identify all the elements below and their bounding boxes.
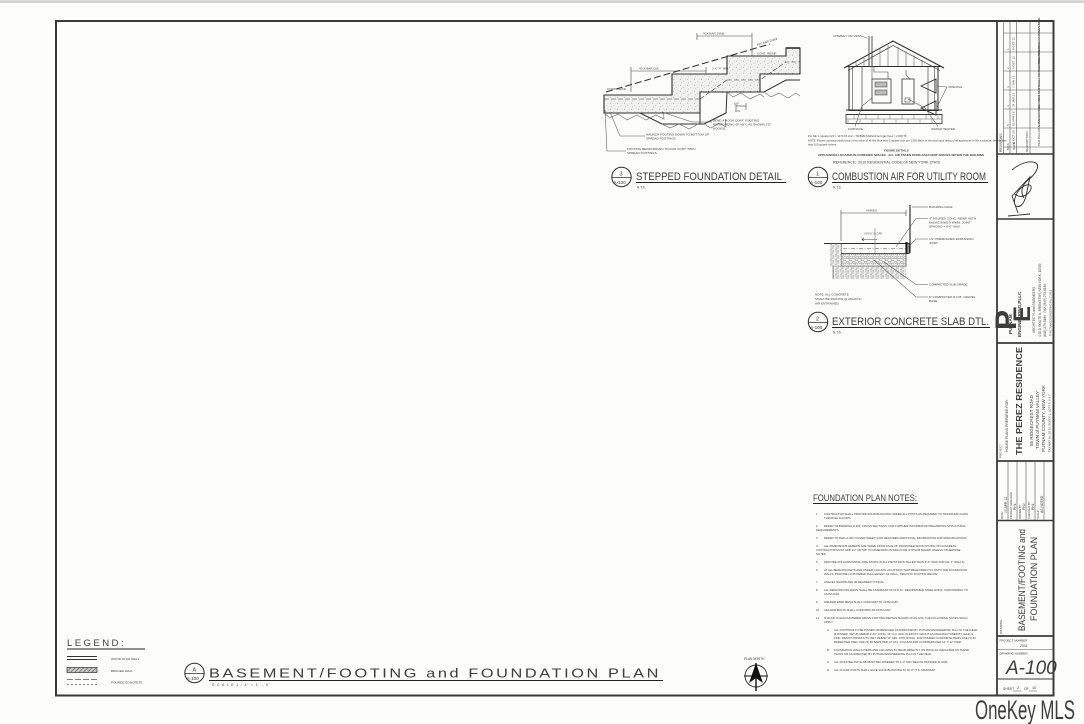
svg-text:Per NE: 1 square inch = 1470.1: Per NE: 1 square inch = 1470.15 mm². / 5…	[808, 134, 907, 138]
svg-text:NOTED.: NOTED.	[816, 552, 827, 556]
svg-text:ANGLES SHOWN ARE 45 DEGREES TY: ANGLES SHOWN ARE 45 DEGREES TYPICAL	[824, 580, 884, 584]
svg-text:ENGINEERING,PLLC: ENGINEERING,PLLC	[1017, 291, 1022, 337]
svg-text:SPACING = 8'-0" MAX.: SPACING = 8'-0" MAX.	[929, 225, 961, 229]
svg-text:PLAN NORTH: PLAN NORTH	[744, 657, 765, 661]
svg-text:© PUTNAM ENGINEERING PLLC 2012: © PUTNAM ENGINEERING PLLC 2012	[1049, 289, 1053, 336]
svg-text:PUTNAM: PUTNAM	[1008, 314, 1013, 334]
svg-text:DRAWING NUMBER: DRAWING NUMBER	[1000, 652, 1029, 656]
svg-text:WOOD STUD WALL: WOOD STUD WALL	[111, 657, 140, 661]
svg-text:COMPACTED SUB GRADE: COMPACTED SUB GRADE	[929, 283, 968, 287]
svg-text:55 RIDGECREST ROAD: 55 RIDGECREST ROAD	[1029, 394, 1034, 446]
svg-text:03 APR 12: 03 APR 12	[1004, 497, 1008, 513]
svg-text:TAX MAP No. 83.16, BLOCK 1, LO: TAX MAP No. 83.16, BLOCK 1, LOTS 5, 6 & …	[1048, 394, 1052, 452]
svg-text:10: 10	[1032, 686, 1036, 690]
svg-text:1.: 1.	[816, 512, 819, 516]
svg-text:A: A	[193, 668, 197, 674]
svg-text:OneKey MLS: OneKey MLS	[975, 695, 1075, 724]
svg-text:THROUGH FLOORS.: THROUGH FLOORS.	[824, 516, 851, 520]
svg-text:APPLY:: APPLY:	[824, 620, 834, 624]
svg-text:UP1%" SLOPE: UP1%" SLOPE	[864, 232, 882, 236]
svg-text:WELDED WIRE MESH SHALL CONFORM: WELDED WIRE MESH SHALL CONFORM TO ASTM A…	[824, 600, 899, 604]
svg-text:6.: 6.	[816, 568, 819, 572]
svg-text:BRACED WALL: BRACED WALL	[111, 669, 133, 673]
svg-text:CHIMNEY OR VENT: CHIMNEY OR VENT	[833, 34, 862, 38]
svg-text:NOTE: Rooms opening (shall) ha: NOTE: Rooms opening (shall) have a first…	[808, 139, 1007, 143]
svg-text:REBAR PER PIER, USE (5) #6 BAR: REBAR PER PIER, USE (5) #6 BARS PER 12" …	[834, 640, 962, 644]
svg-text:LEGEND:: LEGEND:	[67, 638, 126, 649]
svg-text:2: 2	[1017, 686, 1019, 690]
svg-text:BASEMENT/FOOTING and FOUNDAT: BASEMENT/FOOTING and FOUNDATION PLAN	[209, 667, 661, 681]
svg-text:1'-0": 1'-0"	[734, 102, 739, 106]
svg-text:BUILDING FACE: BUILDING FACE	[929, 205, 953, 209]
svg-text:EXTERIOR CONCRETE SLAB DTL.: EXTERIOR CONCRETE SLAB DTL.	[832, 316, 989, 328]
svg-text:N.T.S.: N.T.S.	[637, 186, 646, 190]
svg-text:2: 2	[816, 317, 819, 323]
svg-text:PER BUILDING INSPECTOR COMMENT: PER BUILDING INSPECTOR COMMENTS	[1037, 88, 1041, 146]
svg-text:8.: 8.	[816, 588, 819, 592]
svg-text:FOUNDATION PLAN: FOUNDATION PLAN	[1029, 537, 1039, 621]
svg-text:THE PEREZ RESIDENCE: THE PEREZ RESIDENCE	[1014, 347, 1024, 455]
svg-text:ASTM A615.: ASTM A615.	[824, 592, 840, 596]
svg-text:APPLIANCES LOCATED IN CONFINED: APPLIANCES LOCATED IN CONFINED SPACES - …	[818, 153, 985, 157]
svg-text:HOUSE PLANS PREPARED FOR:: HOUSE PLANS PREPARED FOR:	[1005, 399, 1009, 452]
svg-text:3.: 3.	[816, 536, 819, 540]
svg-text:PROVIDE 2X6 HORIZONTAL FIRE S: PROVIDE 2X6 HORIZONTAL FIRE STOPS IN ALL…	[824, 560, 964, 564]
svg-text:5.: 5.	[816, 560, 819, 564]
svg-text:A.: A.	[827, 628, 830, 632]
svg-text:AIR ENTRAINED: AIR ENTRAINED	[815, 302, 840, 306]
svg-text:JOINT: JOINT	[929, 241, 938, 245]
svg-text:ALL ROCK BELOW SLAB MUST BE LO: ALL ROCK BELOW SLAB MUST BE LOWERED TO 1…	[834, 660, 948, 664]
svg-text:BASE: BASE	[929, 299, 937, 303]
svg-text:OF: OF	[1024, 687, 1029, 691]
svg-text:SPREAD FOOTINGS: SPREAD FOOTINGS	[627, 151, 657, 155]
svg-text:A-100: A-100	[810, 325, 823, 330]
svg-text:ARCHITECTS and ENGINEERS: ARCHITECTS and ENGINEERS	[1032, 287, 1036, 333]
svg-text:COMBUSTION AIR FOR UTILITY ROO: COMBUSTION AIR FOR UTILITY ROOM	[832, 171, 986, 183]
svg-text:7.: 7.	[816, 580, 819, 584]
svg-text:PHL: PHL	[1013, 503, 1017, 510]
svg-text:WATER HEATER: WATER HEATER	[931, 127, 956, 131]
svg-text:01 APR 14: 01 APR 14	[1012, 111, 1016, 126]
svg-text:IF ROCK IS ENCOUNTERED ABOVE F: IF ROCK IS ENCOUNTERED ABOVE FOOTING DEP…	[824, 616, 969, 620]
svg-text:REFER TO DRAWING A-300, CROSS: REFER TO DRAWING A-300, CROSS SECTIONS, …	[824, 524, 966, 528]
svg-text:NOTE: ALL CONCRETE: NOTE: ALL CONCRETE	[815, 293, 849, 297]
svg-text:PHJ: PHJ	[1022, 503, 1026, 510]
svg-text:4 OLD ROUTE 6, BREWSTER, NEW Y: 4 OLD ROUTE 6, BREWSTER, NEW YORK, 10509	[1038, 263, 1042, 337]
svg-text:REQUIREMENTS.: REQUIREMENTS.	[816, 528, 840, 532]
svg-text:HOOKS): HOOKS)	[713, 127, 725, 131]
svg-text:OPENING: OPENING	[948, 85, 963, 89]
svg-text:TOWN of PUTNAM VALLEY: TOWN of PUTNAM VALLEY	[1035, 391, 1040, 449]
svg-text:B.: B.	[827, 648, 830, 652]
svg-text:ANCHOR BOLTS SHALL CONFORM TO: ANCHOR BOLTS SHALL CONFORM TO ASTM A307.	[824, 608, 892, 612]
svg-text:SHEET: SHEET	[1003, 687, 1014, 691]
svg-text:CONT. REINF.: CONT. REINF.	[757, 52, 777, 56]
svg-text:N.T.S.: N.T.S.	[833, 331, 842, 335]
svg-text:7 JAN 13: 7 JAN 13	[1012, 75, 1016, 88]
svg-text:SPREAD FOOTINGS: SPREAD FOOTINGS	[646, 137, 676, 141]
svg-text:than 100 square inches.: than 100 square inches.	[808, 143, 837, 147]
svg-text:SHALL BE 3500 PSI @ 28 DAYS,: SHALL BE 3500 PSI @ 28 DAYS,	[815, 297, 862, 301]
svg-text:30 OCT 20: 30 OCT 20	[1012, 130, 1016, 145]
svg-text:3: 3	[620, 172, 623, 178]
svg-text:PLANS OR AS DIRECTED BY PUTNAM: PLANS OR AS DIRECTED BY PUTNAM ENGINEERI…	[834, 652, 932, 656]
svg-text:A-100: A-100	[614, 180, 627, 185]
svg-text:6 OCT 12: 6 OCT 12	[1012, 56, 1016, 69]
svg-text:AS NOTED: AS NOTED	[1040, 495, 1044, 513]
svg-text:D.: D.	[827, 668, 830, 672]
svg-text:2041: 2041	[1020, 644, 1028, 648]
svg-text:PUTNAM COUNTY, NEW YORK: PUTNAM COUNTY, NEW YORK	[1041, 384, 1046, 452]
svg-text:DRAWING: DRAWING	[999, 619, 1003, 634]
svg-text:A-100: A-100	[1005, 658, 1057, 679]
svg-text:CONTRACTOR MUST ADD 1/2" OR 5/: CONTRACTOR MUST ADD 1/2" OR 5/8" TO DIME…	[816, 548, 961, 552]
svg-text:24 JAN 13: 24 JAN 13	[1012, 93, 1016, 107]
svg-text:CONT. REINF.: CONT. REINF.	[607, 87, 627, 91]
svg-text:10.: 10.	[816, 608, 820, 612]
svg-text:11.: 11.	[816, 616, 820, 620]
svg-text:(845) 279-6184 FAX (845) 279: (845) 279-6184 FAX (845) 279-6184	[1043, 284, 1047, 337]
svg-text:VARIES: VARIES	[866, 209, 877, 213]
svg-text:FIGURE DETAILS: FIGURE DETAILS	[884, 149, 909, 153]
svg-text:PROJECT NUMBER: PROJECT NUMBER	[1000, 639, 1029, 643]
svg-text:40 X BAR DIA.: 40 X BAR DIA.	[639, 67, 660, 71]
svg-text:MIN.: MIN.	[735, 109, 741, 113]
svg-text:DESCRIPTION: DESCRIPTION	[1025, 131, 1029, 152]
svg-text:0 OCT 12: 0 OCT 12	[1012, 37, 1016, 50]
svg-text:FOUNDATION PLAN NOTES:: FOUNDATION PLAN NOTES:	[813, 493, 917, 504]
svg-text:WALLS, PROVIDE (4) #5 REBAR FU: WALLS, PROVIDE (4) #5 REBAR FULL HEIGHT …	[824, 572, 938, 576]
svg-text:STEPPED FOUNDATION DETAIL: STEPPED FOUNDATION DETAIL	[636, 171, 782, 183]
svg-text:2 X "A" MIN.: 2 X "A" MIN.	[712, 67, 729, 71]
svg-text:PROJECT: PROJECT	[999, 444, 1003, 458]
svg-text:40X BAR DIAM.: 40X BAR DIAM.	[703, 32, 725, 36]
svg-text:REFERENCE: 2010 RESIDENTIAL C: REFERENCE: 2010 RESIDENTIAL CODE OF NEW …	[833, 161, 941, 165]
svg-text:A-100: A-100	[187, 676, 200, 681]
svg-text:FURNACE: FURNACE	[848, 127, 863, 131]
svg-text:9.: 9.	[816, 600, 819, 604]
svg-text:BASEMENT/FOOTING and: BASEMENT/FOOTING and	[1017, 529, 1027, 631]
svg-text:1: 1	[816, 172, 819, 178]
svg-text:ALL FLOOR JOISTS SHALL HAVE SO: ALL FLOOR JOISTS SHALL HAVE SOLID BLOCKI…	[834, 668, 936, 672]
svg-text:PHL: PHL	[1031, 503, 1035, 510]
svg-text:POURED CONCRETE: POURED CONCRETE	[111, 681, 142, 685]
svg-text:N.T.S.: N.T.S.	[833, 186, 842, 190]
svg-text:REFER TO DWG A-000 (COVER SHEE: REFER TO DWG A-000 (COVER SHEET) FOR REQ…	[824, 536, 967, 540]
svg-text:S C A L E 1 / 4" = 1' - 0": S C A L E 1 / 4" = 1' - 0"	[212, 683, 271, 687]
svg-text:ALL REINFORCING RODS SHALL BE: ALL REINFORCING RODS SHALL BE A MINIMUM …	[824, 588, 969, 592]
svg-text:A-100: A-100	[810, 180, 823, 185]
svg-text:C.: C.	[827, 660, 830, 664]
